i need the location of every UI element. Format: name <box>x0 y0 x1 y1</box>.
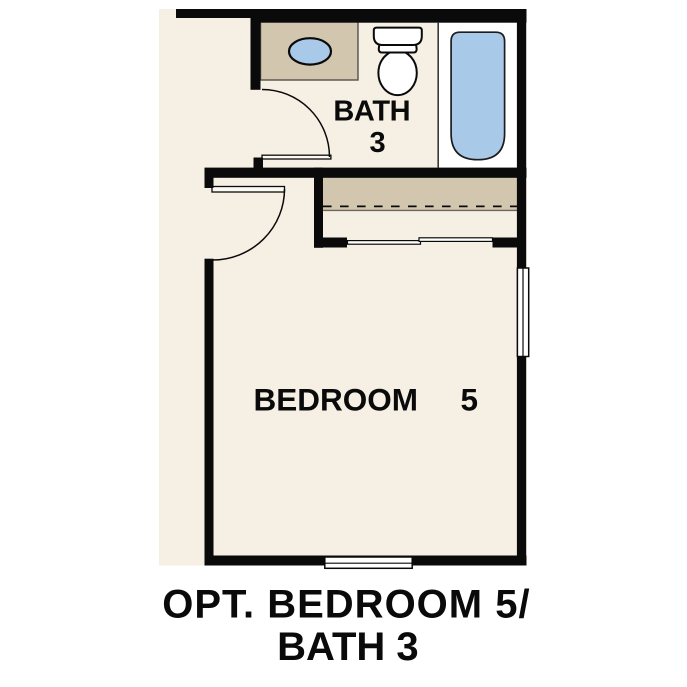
svg-text:OPT. BEDROOM 5/: OPT. BEDROOM 5/ <box>162 582 530 626</box>
svg-text:BATH 3: BATH 3 <box>277 625 418 669</box>
svg-text:3: 3 <box>370 127 386 159</box>
svg-text:BEDROOM: BEDROOM <box>254 382 419 418</box>
svg-text:5: 5 <box>461 382 479 418</box>
svg-text:BATH: BATH <box>333 96 410 128</box>
